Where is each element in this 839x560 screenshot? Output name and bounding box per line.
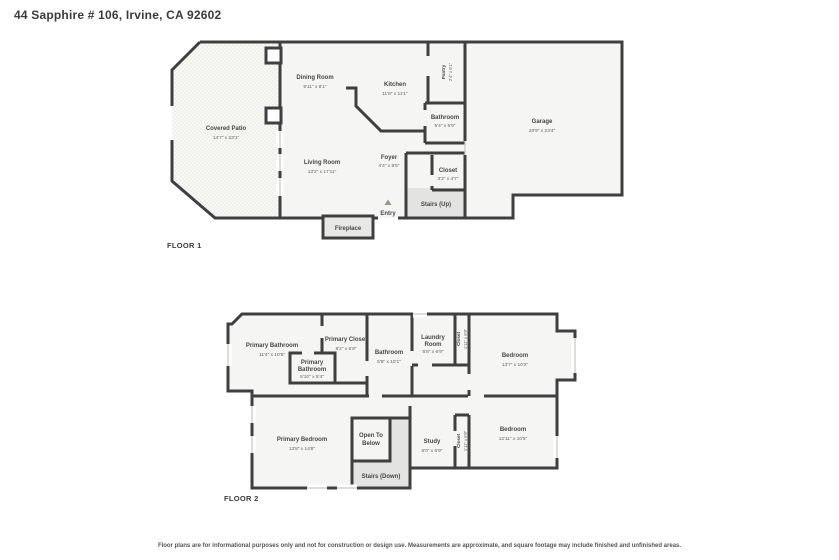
room-label-laundry-1: Laundry <box>421 335 445 341</box>
room-dims-primary-bedroom: 13'8" x 14'8" <box>289 446 316 452</box>
room-dims-laundry: 5'8" x 6'9" <box>423 349 444 355</box>
room-dims-kitchen: 11'8" x 11'1" <box>382 91 408 97</box>
room-label-bathroom2: Bathroom <box>375 350 403 356</box>
room-label-bathroom: Bathroom <box>431 115 459 121</box>
room-dims-bedroom-bottom: 12'11" x 10'5" <box>499 436 528 442</box>
room-label-closet-bottom: Closet <box>456 434 461 449</box>
room-label-primary-bedroom: Primary Bedroom <box>277 437 327 443</box>
room-label-foyer: Foyer <box>381 155 398 161</box>
room-label-bedroom-bottom: Bedroom <box>500 427 526 433</box>
room-label-pantry: Pantry <box>441 64 446 79</box>
room-label-study: Study <box>424 439 441 445</box>
room-label-living-room: Living Room <box>304 160 340 166</box>
room-label-primary-bathroom-small-2: Bathroom <box>298 367 326 373</box>
room-label-primary-bathroom-small-1: Primary <box>301 360 324 366</box>
room-dims-bathroom2: 5'8" x 10'1" <box>377 359 401 365</box>
room-dims-study: 6'0" x 6'9" <box>422 448 443 454</box>
room-label-bedroom-top: Bedroom <box>502 353 528 359</box>
room-label-stairs-down: Stairs (Down) <box>362 474 401 480</box>
room-dims-primary-closet: 8'2" x 6'9" <box>336 346 357 352</box>
room-dims-closet-bottom: 1'11" x 6'9" <box>463 430 468 451</box>
room-label-dining-room: Dining Room <box>296 75 333 81</box>
room-dims-dining-room: 9'11" x 8'1" <box>303 84 327 90</box>
room-label-covered-patio: Covered Patio <box>206 126 247 132</box>
room-label-closet: Closet <box>439 168 457 174</box>
room-label-laundry-2: Room <box>425 342 442 348</box>
room-label-primary-closet: Primary Closet <box>325 337 367 343</box>
room-label-closet-top: Closet <box>456 332 461 347</box>
room-dims-primary-bathroom: 11'4" x 10'5" <box>259 352 285 358</box>
room-dims-living-room: 13'2" x 17'11" <box>308 169 337 175</box>
room-label-garage: Garage <box>532 119 553 125</box>
patio-pillar <box>266 48 281 63</box>
room-dims-bedroom-top: 13'7" x 10'2" <box>502 362 529 368</box>
open-to-below-box <box>352 418 390 461</box>
floor2-label: FLOOR 2 <box>224 494 259 503</box>
floor1-plan: Covered Patio 14'7" x 23'1" Dining Room … <box>160 36 630 248</box>
room-dims-bathroom: 5'4" x 5'9" <box>435 123 456 129</box>
room-dims-closet-top: 1'11" x 6'9" <box>463 328 468 349</box>
room-label-stairs-up: Stairs (Up) <box>421 202 451 208</box>
floorplan-page: 44 Sapphire # 106, Irvine, CA 92602 <box>0 0 839 560</box>
room-label-fireplace: Fireplace <box>335 226 362 232</box>
patio-pillar <box>266 108 281 123</box>
room-dims-primary-bathroom-small: 5'10" x 5'4" <box>300 374 324 380</box>
disclaimer-text: Floor plans are for informational purpos… <box>0 543 839 549</box>
room-dims-pantry: 2'4" x 5'1" <box>448 62 453 81</box>
room-label-open-to-below-2: Below <box>362 441 380 447</box>
room-label-kitchen: Kitchen <box>384 82 406 88</box>
room-dims-covered-patio: 14'7" x 23'1" <box>213 135 240 141</box>
room-dims-garage: 20'9" x 23'4" <box>529 128 556 134</box>
room-label-open-to-below-1: Open To <box>359 433 383 439</box>
page-title: 44 Sapphire # 106, Irvine, CA 92602 <box>14 8 221 22</box>
room-label-entry: Entry <box>380 211 396 217</box>
room-dims-foyer: 4'4" x 8'5" <box>379 163 400 169</box>
room-label-primary-bathroom: Primary Bathroom <box>246 343 298 349</box>
room-dims-closet: 3'2" x 4'7" <box>438 176 459 182</box>
floor1-label: FLOOR 1 <box>167 241 202 250</box>
floor2-plan: Primary Bathroom 11'4" x 10'5" Primary C… <box>222 306 582 498</box>
